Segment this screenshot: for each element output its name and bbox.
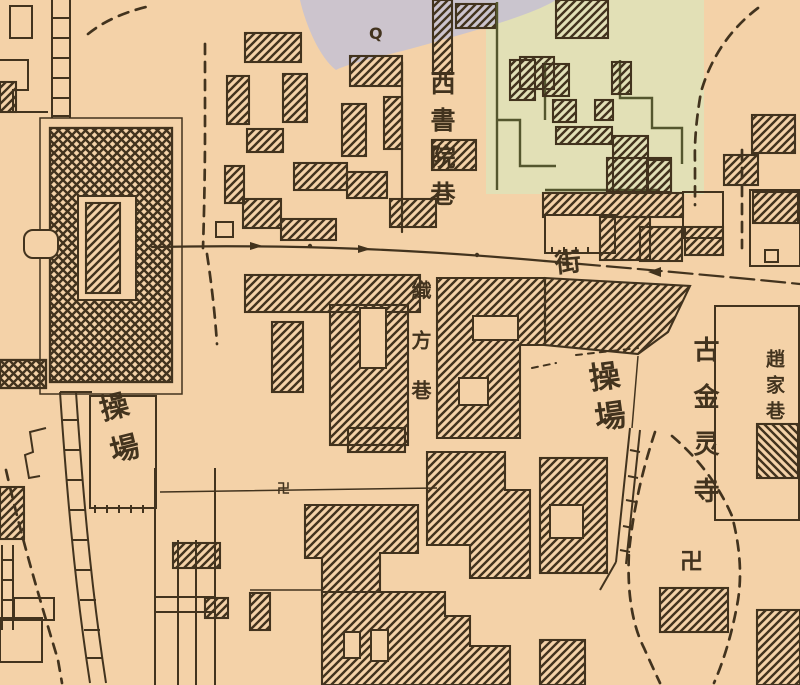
historical-city-map: 西書院巷織方巷街操場操場古金灵寺趙家巷卍卍Q [0, 0, 800, 685]
courtyard [360, 308, 386, 368]
tower-strip [433, 0, 452, 74]
temple-building [660, 588, 728, 632]
map-canvas [0, 0, 800, 685]
inner-building [86, 203, 120, 293]
gate-protrusion [24, 230, 58, 258]
